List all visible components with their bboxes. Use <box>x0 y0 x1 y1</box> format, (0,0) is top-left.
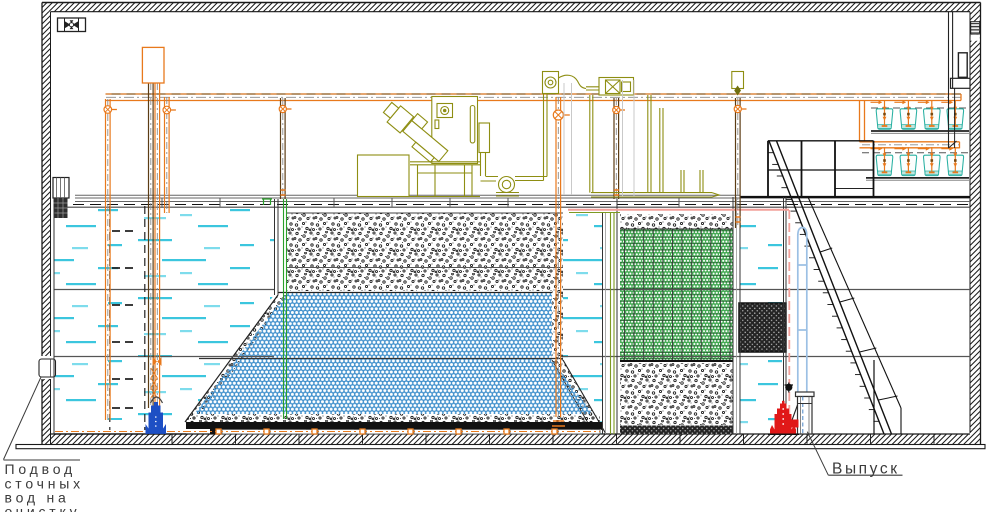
svg-text:Выпуск: Выпуск <box>832 461 900 478</box>
svg-text:очистку: очистку <box>5 504 81 512</box>
